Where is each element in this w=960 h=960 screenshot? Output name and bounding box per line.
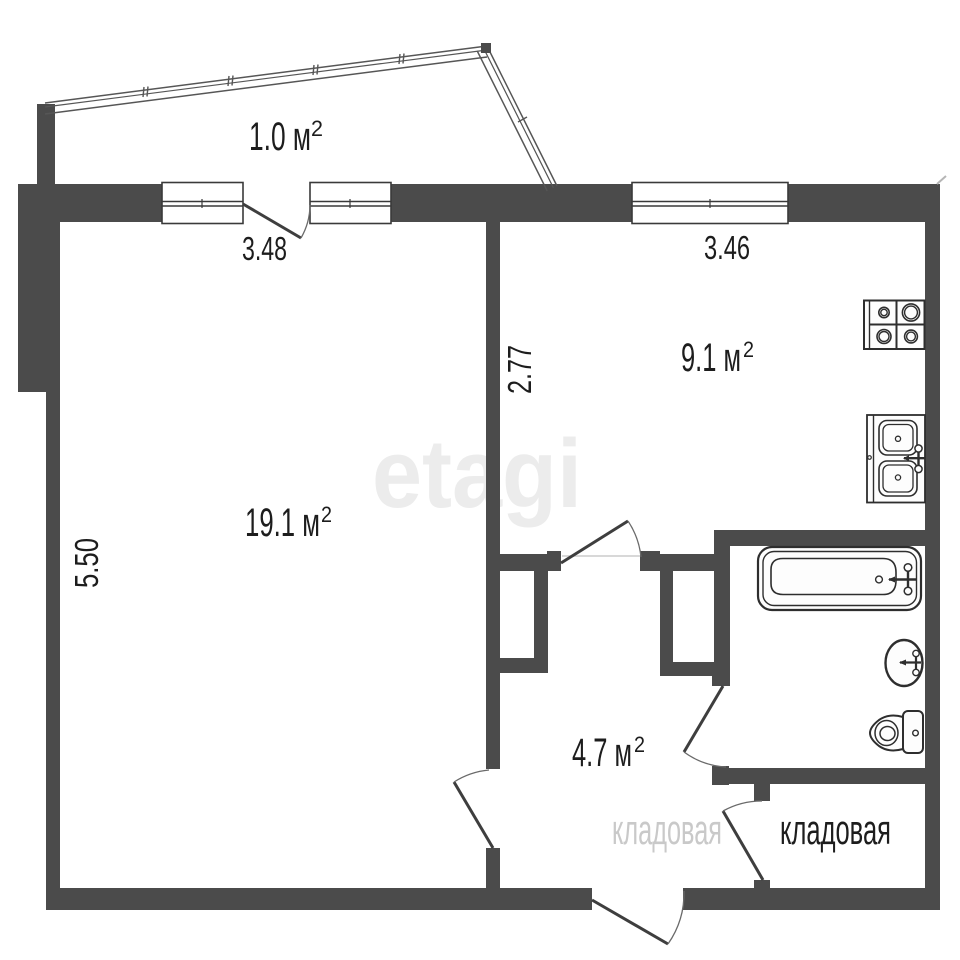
svg-text:2: 2: [311, 116, 323, 141]
svg-text:1.0 м: 1.0 м: [249, 115, 311, 159]
svg-text:3.48: 3.48: [242, 230, 287, 267]
svg-text:9.1 м: 9.1 м: [681, 336, 741, 380]
svg-text:2.77: 2.77: [501, 345, 538, 394]
svg-text:4.7 м: 4.7 м: [572, 731, 632, 775]
svg-text:2: 2: [321, 502, 332, 527]
svg-text:кладовая: кладовая: [612, 806, 722, 853]
svg-text:2: 2: [743, 337, 754, 362]
svg-text:19.1 м: 19.1 м: [245, 501, 320, 545]
svg-text:кладовая: кладовая: [780, 806, 891, 853]
svg-text:3.46: 3.46: [704, 229, 750, 266]
svg-text:5.50: 5.50: [68, 538, 105, 588]
svg-text:etagi: etagi: [372, 419, 582, 528]
svg-text:2: 2: [634, 732, 645, 757]
